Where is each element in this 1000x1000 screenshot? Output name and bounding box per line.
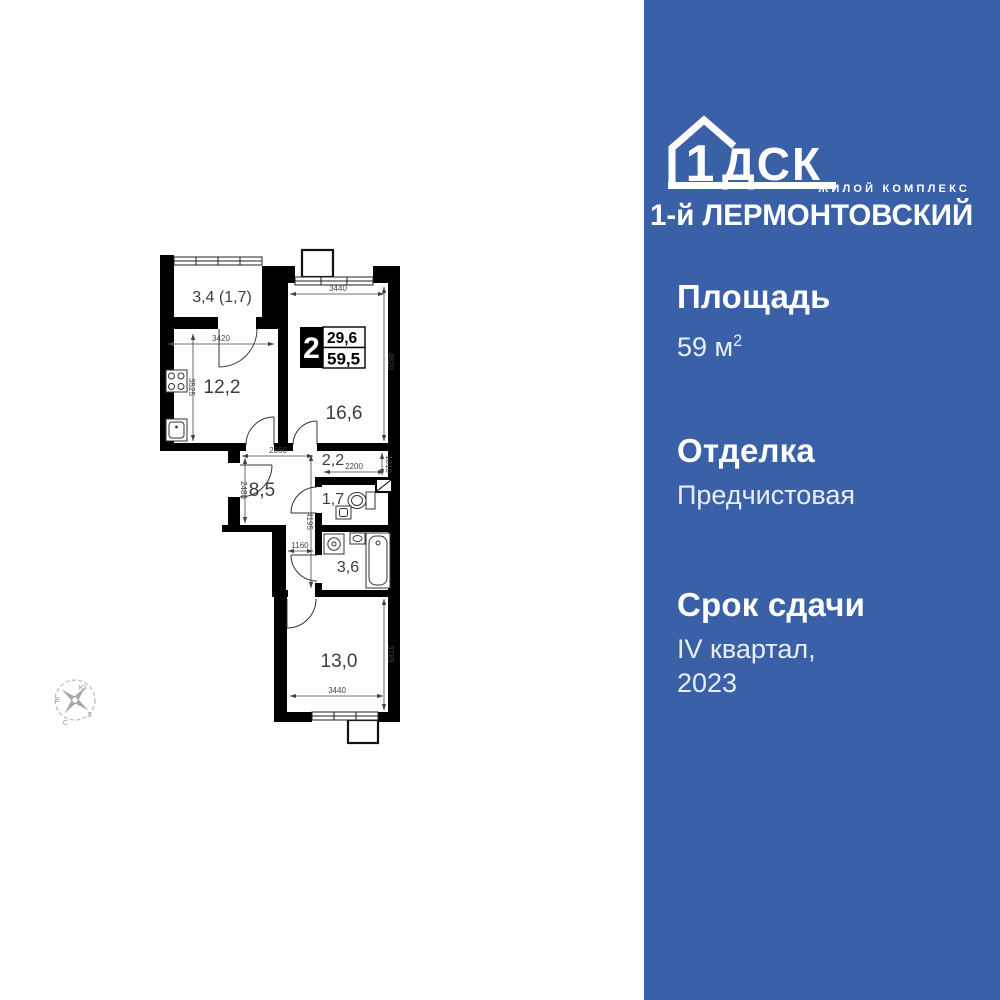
dim-corridor-height: 1010 [384, 455, 393, 473]
info-panel: 1 ДСК ЖИЛОЙ КОМПЛЕКС 1-й ЛЕРМОНТОВСКИЙ П… [644, 0, 1000, 1000]
bathtub-icon [366, 533, 390, 588]
brand-logo-digit: 1 [686, 135, 715, 193]
spec-deadline-line2: 2023 [677, 666, 977, 700]
kitchen-sink-icon [166, 419, 187, 441]
room-kitchen: 12,2 [204, 377, 241, 398]
bath-sink-icon [350, 533, 365, 544]
dim-column-height: 4195 [305, 512, 314, 530]
floor-plan: 3420 3525 3440 4820 2660 2480 2200 1010 … [0, 0, 644, 1000]
apartment-flyer: 3420 3525 3440 4820 2660 2480 2200 1010 … [0, 0, 1000, 1000]
spec-area-number: 59 м [677, 332, 733, 362]
vent-box-top [302, 250, 333, 277]
kitchen-door [246, 417, 274, 445]
room-living: 16,6 [326, 403, 363, 424]
dim-hall-width: 2660 [269, 446, 287, 455]
compass-south-label: Ю [79, 683, 87, 692]
spec-finish-label: Отделка [677, 432, 977, 470]
vent-box-bottom [348, 720, 378, 743]
dim-living-width: 3440 [329, 284, 347, 293]
walls [160, 255, 400, 722]
living-door [293, 421, 317, 445]
compass-rose: Ю В З С [51, 676, 99, 727]
badge-rooms-count: 2 [303, 332, 320, 365]
room-hall: 8,5 [249, 480, 275, 501]
room-bath: 3,6 [337, 559, 359, 576]
washing-machine-icon [324, 534, 344, 554]
spec-finish: Отделка Предчистовая [677, 432, 977, 512]
room-bedroom: 13,0 [321, 651, 358, 672]
compass-west-label: З [87, 710, 92, 719]
balcony-window [174, 257, 262, 265]
shaft-icon [376, 479, 392, 492]
wc-door [291, 487, 317, 513]
compass-north-label: С [63, 718, 69, 727]
brand-logo-letters: ДСК [722, 138, 822, 190]
bath-door [291, 555, 317, 581]
doors [219, 329, 317, 628]
dim-bedroom-width: 3440 [328, 686, 346, 695]
spec-finish-value: Предчистовая [677, 478, 977, 512]
spec-area: Площадь 59 м2 [677, 278, 977, 364]
room-corridor: 2,2 [322, 452, 344, 469]
dim-hall-height: 2480 [239, 481, 248, 499]
spec-area-sup: 2 [733, 332, 742, 350]
room-wc: 1,7 [322, 491, 344, 508]
dim-kitchen-width: 3420 [212, 334, 230, 343]
stove-icon [166, 370, 187, 392]
brand-logo: 1 ДСК ЖИЛОЙ КОМПЛЕКС 1-й ЛЕРМОНТОВСКИЙ [648, 112, 972, 232]
dim-wc-width: 2200 [345, 462, 363, 471]
bedroom-window [312, 712, 378, 720]
brand-name: 1-й ЛЕРМОНТОВСКИЙ [650, 198, 972, 232]
spec-area-value: 59 м2 [677, 324, 977, 364]
badge-total-area: 59,5 [327, 350, 360, 369]
dim-kitchen-height: 3525 [187, 378, 196, 396]
spec-area-label: Площадь [677, 278, 977, 316]
spec-deadline-line1: IV квартал, [677, 632, 977, 666]
dim-passage-width: 1160 [291, 541, 309, 550]
spec-deadline: Срок сдачи IV квартал, 2023 [677, 586, 977, 700]
spec-deadline-label: Срок сдачи [677, 586, 977, 624]
toilet-icon [348, 492, 375, 509]
area-badge: 2 29,6 59,5 [300, 327, 365, 369]
brand-subtitle: ЖИЛОЙ КОМПЛЕКС [817, 182, 970, 195]
compass-east-label: В [55, 695, 60, 704]
dim-living-height: 4820 [386, 352, 395, 370]
room-balcony: 3,4 (1,7) [192, 289, 252, 306]
bedroom-door [287, 599, 316, 628]
dim-bedroom-height: 3785 [386, 645, 395, 663]
spec-deadline-value: IV квартал, 2023 [677, 632, 977, 700]
badge-living-area: 29,6 [327, 330, 358, 347]
